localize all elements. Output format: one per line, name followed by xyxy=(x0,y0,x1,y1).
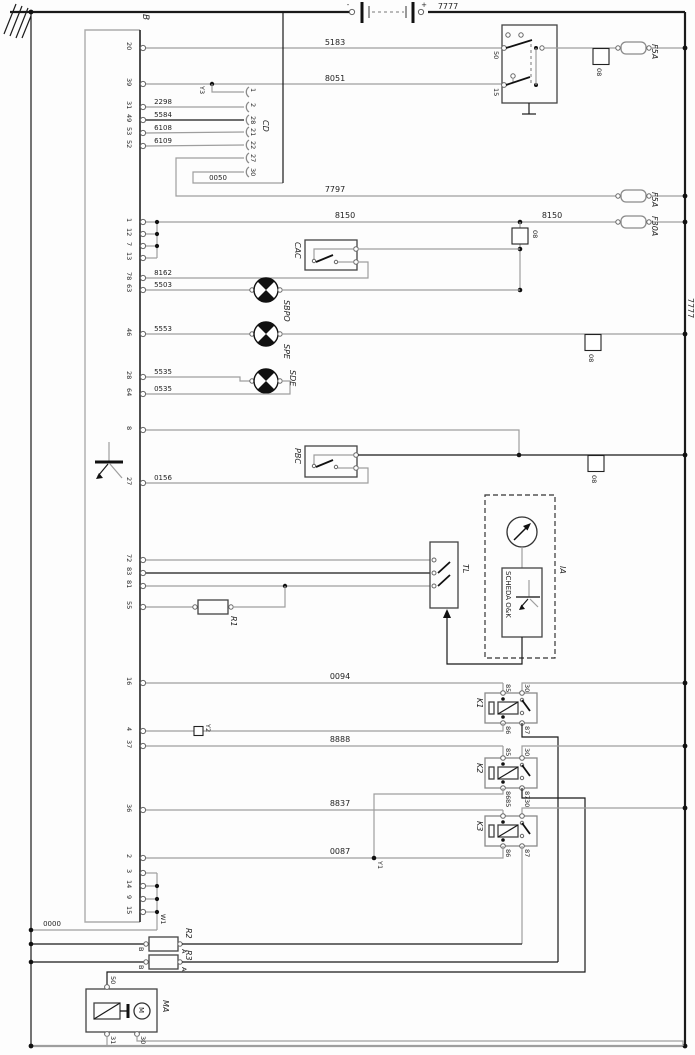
battery-minus-label: - xyxy=(347,1,350,9)
connector-cd-label: CD xyxy=(261,120,270,132)
ma-label: MA xyxy=(161,1000,170,1012)
k1-pin87-label: 87 xyxy=(523,726,531,734)
svg-text:1: 1 xyxy=(249,88,257,92)
gauge-icon xyxy=(507,517,537,547)
svg-text:3: 3 xyxy=(125,869,133,873)
r3-term-b-label: B xyxy=(137,965,145,969)
svg-text:9: 9 xyxy=(125,895,133,899)
ignition-switch xyxy=(502,25,557,114)
battery-plus-label: + xyxy=(421,1,427,9)
svg-text:52: 52 xyxy=(125,140,133,148)
svg-text:63: 63 xyxy=(125,284,133,292)
ground-square-4 xyxy=(588,456,604,472)
tl-label: TL xyxy=(461,564,470,573)
svg-text:2: 2 xyxy=(125,854,133,858)
svg-text:30: 30 xyxy=(249,168,257,176)
k1-pin86-label: 86 xyxy=(504,726,512,734)
wire-k2-87 xyxy=(107,788,585,986)
pbc-label: PBC xyxy=(293,448,302,464)
svg-text:8: 8 xyxy=(125,426,133,430)
wire-0094-label: 0094 xyxy=(330,672,350,681)
fuse-f5a-mid-label: F5A xyxy=(650,192,659,207)
wire-0050-label: 0050 xyxy=(209,174,227,182)
sbpo-label: SBPO xyxy=(282,300,291,322)
connector-b-label: B xyxy=(140,14,150,20)
wire-8837-label: 8837 xyxy=(330,799,350,808)
svg-text:21: 21 xyxy=(249,128,257,136)
k3-pin85-label: 85 xyxy=(504,799,512,807)
cac-switch xyxy=(305,240,358,270)
tl-switch xyxy=(430,542,458,608)
y1-label: Y1 xyxy=(376,860,384,869)
svg-text:12: 12 xyxy=(125,228,133,236)
ma-pin50-label: 50 xyxy=(109,976,117,984)
ignition-pin-15-label: 15 xyxy=(492,88,500,96)
wire-0156 xyxy=(146,468,368,483)
wire-8888-label: 8888 xyxy=(330,735,350,744)
y2-label: Y2 xyxy=(204,723,212,732)
svg-text:81: 81 xyxy=(125,580,133,588)
schematic-canvas: - + 7777 7777 B 20 39 31 49 53 52 1 12 7… xyxy=(0,0,695,1055)
ma-pin31-label: 31 xyxy=(109,1036,117,1044)
svg-text:78: 78 xyxy=(125,272,133,280)
k3-pin30-label: 30 xyxy=(523,799,531,807)
cac-label: CAC xyxy=(293,242,302,259)
sbpo-lamp-icon xyxy=(146,278,520,302)
ground-square-2-label: 08 xyxy=(531,230,539,238)
ground-hatch-icon xyxy=(4,4,31,38)
wire-6109-label: 6109 xyxy=(154,137,172,145)
spe-label: SPE xyxy=(282,344,291,360)
wire-0087 xyxy=(146,846,503,858)
y2-square xyxy=(194,727,203,736)
svg-text:1: 1 xyxy=(125,218,133,222)
connector-cd-pin-labels: 1 2 28 21 22 27 30 xyxy=(249,88,257,176)
wire-6108 xyxy=(146,132,244,133)
svg-text:72: 72 xyxy=(125,554,133,562)
svg-text:55: 55 xyxy=(125,601,133,609)
wire-7797 xyxy=(176,158,618,196)
resistor-r2 xyxy=(29,937,522,951)
connector-b-frame xyxy=(85,30,140,922)
sde-label: SDE xyxy=(288,370,297,387)
connector-b-pin-labels: 20 39 31 49 53 52 1 12 7 13 78 63 46 28 … xyxy=(125,42,133,914)
ignition-pin-50-label: 50 xyxy=(492,51,500,59)
svg-text:64: 64 xyxy=(125,388,133,396)
wire-5183-label: 5183 xyxy=(325,38,345,47)
wire-7777-label: 7777 xyxy=(438,2,458,11)
scheda-label: SCHEDA O&K xyxy=(504,571,512,618)
wire-5553-label: 5553 xyxy=(154,325,172,333)
connector-b-pins xyxy=(140,45,145,914)
k1-pin85-label: 85 xyxy=(504,684,512,692)
ia-label: IA xyxy=(558,566,567,574)
r1-label: R1 xyxy=(229,616,238,627)
wire-6108-label: 6108 xyxy=(154,124,172,132)
ma-pin30-label: 30 xyxy=(139,1036,147,1044)
wire-8150-label-left: 8150 xyxy=(335,211,355,220)
w1-label: W1 xyxy=(159,914,167,925)
k2-label: K2 xyxy=(475,763,484,773)
svg-text:15: 15 xyxy=(125,906,133,914)
ma-starter-motor xyxy=(86,985,683,1046)
wire-5535-label: 5535 xyxy=(154,368,172,376)
wire-0156-label: 0156 xyxy=(154,474,172,482)
svg-text:37: 37 xyxy=(125,740,133,748)
svg-text:27: 27 xyxy=(249,154,257,162)
ground-square-1-label: 08 xyxy=(595,68,603,76)
svg-text:20: 20 xyxy=(125,42,133,50)
junction-y3-label: Y3 xyxy=(198,85,206,94)
wire-k1-87 xyxy=(522,723,558,962)
k3-pin87-label: 87 xyxy=(523,849,531,857)
ground-square-1 xyxy=(593,49,609,65)
wire-6109 xyxy=(146,145,244,146)
wire-0087-label: 0087 xyxy=(330,847,350,856)
svg-text:13: 13 xyxy=(125,252,133,260)
svg-text:22: 22 xyxy=(249,141,257,149)
svg-text:53: 53 xyxy=(125,127,133,135)
ground-square-3 xyxy=(585,335,601,351)
svg-text:83: 83 xyxy=(125,567,133,575)
wire-0000-label: 0000 xyxy=(43,920,61,928)
wire-5584-label: 5584 xyxy=(154,111,172,119)
k1-pin30-label: 30 xyxy=(523,684,531,692)
resistor-r3 xyxy=(29,955,558,969)
svg-text:28: 28 xyxy=(125,371,133,379)
svg-text:27: 27 xyxy=(125,477,133,485)
fuse-f5a-top-label: F5A xyxy=(650,44,659,59)
svg-text:7: 7 xyxy=(125,242,133,246)
svg-text:2: 2 xyxy=(249,103,257,107)
wire-5503-label: 5503 xyxy=(154,281,172,289)
wire-8150-label-right: 8150 xyxy=(542,211,562,220)
bus-7777-label: 7777 xyxy=(686,298,695,318)
ground-square-2 xyxy=(512,228,528,244)
svg-text:46: 46 xyxy=(125,328,133,336)
connector-cd xyxy=(246,87,249,177)
r3-term-a-label: A xyxy=(180,967,188,972)
ground-square-3-label: 08 xyxy=(587,354,595,362)
ground-square-4-label: 08 xyxy=(590,475,598,483)
svg-text:14: 14 xyxy=(125,880,133,888)
r3-label: R3 xyxy=(184,950,193,961)
wire-0050 xyxy=(193,172,283,183)
wiring-diagram-page: - + 7777 7777 B 20 39 31 49 53 52 1 12 7… xyxy=(0,0,695,1055)
wire-y3-to-cd1 xyxy=(212,84,244,92)
svg-text:28: 28 xyxy=(249,116,257,124)
svg-text:49: 49 xyxy=(125,114,133,122)
relay-k1 xyxy=(485,691,537,726)
relay-k2 xyxy=(485,756,537,791)
tl-input-arrowhead xyxy=(443,609,451,618)
svg-text:31: 31 xyxy=(125,101,133,109)
motor-m-label: M xyxy=(137,1007,145,1013)
svg-text:36: 36 xyxy=(125,804,133,812)
battery-icon xyxy=(349,2,423,23)
pbc-switch xyxy=(305,446,358,477)
pin-chain-1-12-7-13 xyxy=(146,220,159,258)
pin-chain-w1 xyxy=(146,873,159,930)
k2-pin30-label: 30 xyxy=(523,748,531,756)
r2-label: R2 xyxy=(184,928,193,939)
k2-pin85-label: 85 xyxy=(504,748,512,756)
wire-7797-label: 7797 xyxy=(325,185,345,194)
wire-8051-label: 8051 xyxy=(325,74,345,83)
svg-text:4: 4 xyxy=(125,727,133,731)
svg-text:16: 16 xyxy=(125,677,133,685)
k1-label: K1 xyxy=(475,698,484,708)
wire-pin8 xyxy=(146,430,519,455)
r2-term-b-label: B xyxy=(137,947,145,951)
fuse-f30a-label: F30A xyxy=(650,216,659,236)
k3-label: K3 xyxy=(475,821,484,831)
spe-lamp-icon xyxy=(146,322,687,346)
wire-2298-label: 2298 xyxy=(154,98,172,106)
wire-0535-label: 0535 xyxy=(154,385,172,393)
svg-text:39: 39 xyxy=(125,78,133,86)
wire-8162-label: 8162 xyxy=(154,269,172,277)
relay-k3 xyxy=(485,814,537,849)
trimmer-arrow-icon xyxy=(95,442,123,479)
resistor-r1 xyxy=(146,586,285,614)
k3-pin86-label: 86 xyxy=(504,849,512,857)
